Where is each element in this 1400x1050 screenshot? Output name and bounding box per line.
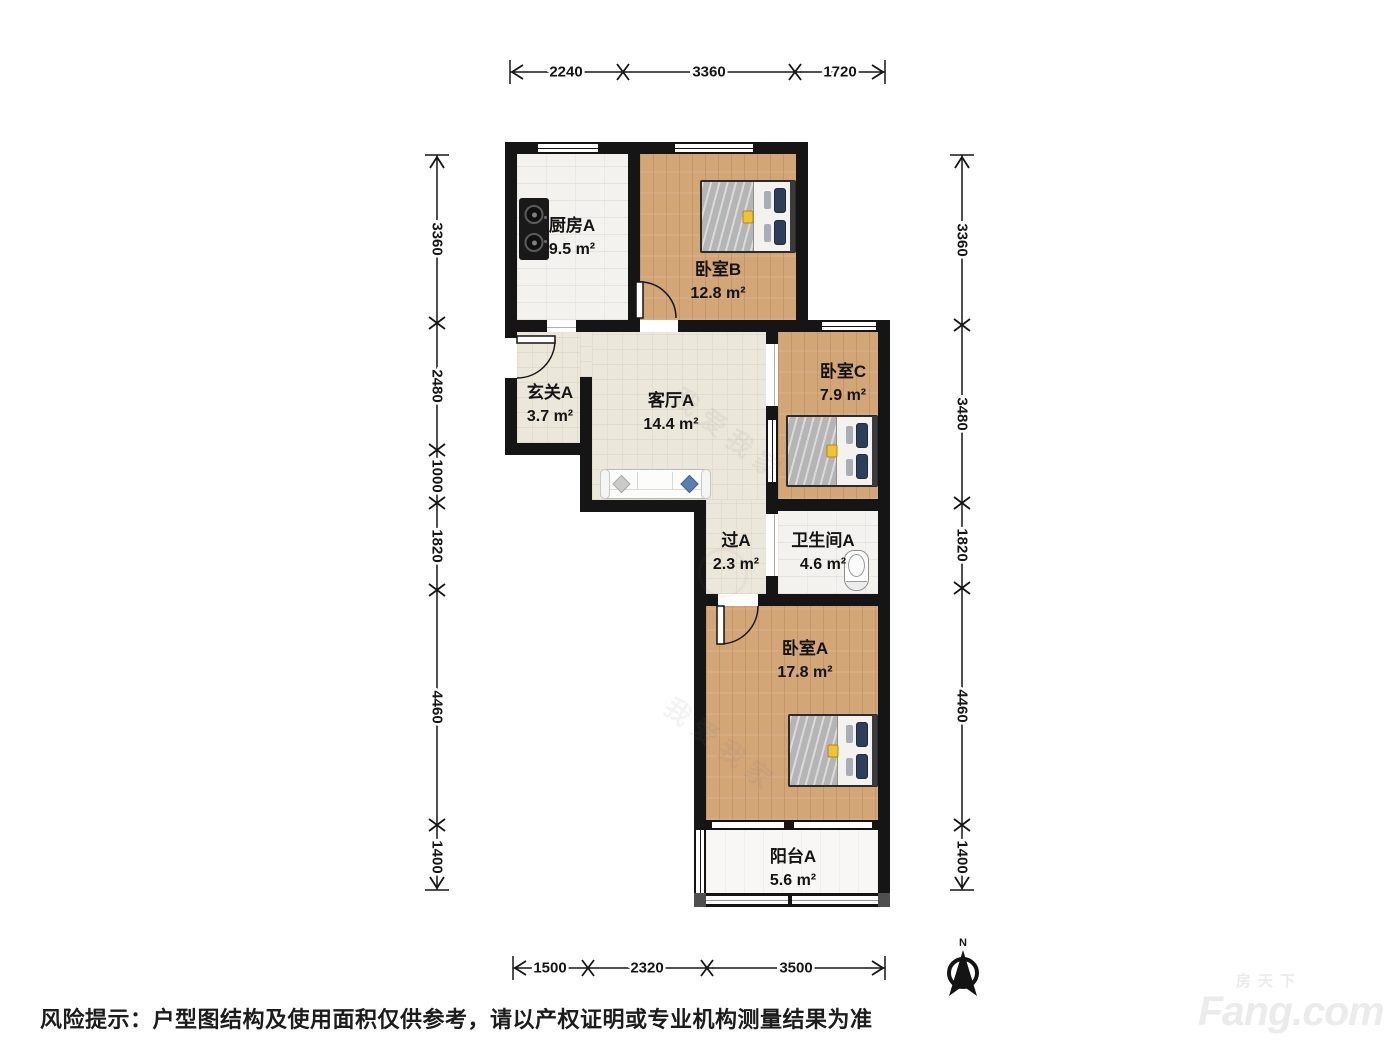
toilet-tank [846,581,867,589]
balcony-front-divider [788,893,792,907]
dimension-label: 3360 [692,64,725,81]
balcony-divider-post-1 [694,820,712,830]
wall-living-bottom [580,500,706,512]
bed-pillow [774,188,786,213]
room-area: 14.4 m² [643,413,698,436]
room-name: 阳台A [770,845,816,869]
bed-headboard [872,416,877,486]
bed-pillow-small [764,191,771,209]
window-bedroom-c [822,320,876,332]
room-area: 17.8 m² [777,661,832,684]
room-name: 厨房A [549,214,595,238]
door-bathroom [766,512,778,578]
room-label-hall: 过A 2.3 m² [713,529,759,576]
dimension-label: 1000 [429,459,446,492]
dimension-label: 3500 [779,960,812,977]
bed-accent [827,445,838,458]
compass-icon: N [949,937,977,996]
wall-mid-h-1 [505,320,545,332]
room-area: 9.5 m² [549,238,595,261]
floorplan-page: 我爱我家 我爱我家 厨房A 9.5 m² 卧室B 12.8 m² 玄关A 3.7… [0,0,1400,1050]
wall-bedrooma-top-2 [758,594,890,606]
bed-pillow-small [846,758,853,776]
dimension-label: 1500 [533,960,566,977]
sofa-icon [600,469,711,499]
sofa-pillow-gray [612,475,630,493]
window-balcony-left [694,830,706,893]
bed-pillow-small [846,459,853,477]
floor-entry-gap [580,332,592,377]
room-area: 7.9 m² [820,384,866,407]
wall-hall-left [694,500,706,830]
room-area: 2.3 m² [713,553,759,576]
dimension-label: 3480 [954,397,971,430]
sofa-pillow-blue [680,475,698,493]
dimension-label: 3360 [954,223,971,256]
dimension-label: 1400 [429,840,446,873]
stove-knob [544,216,547,219]
room-label-bedroom-c: 卧室C 7.9 m² [820,360,866,407]
burner-icon [525,233,544,252]
dimension-label: 1820 [954,528,971,561]
room-label-entry: 玄关A 3.7 m² [527,381,573,428]
dimension-right: 3360 3480 1820 4460 1400 [950,155,974,890]
bed-pillow-small [764,224,771,242]
room-label-bedroom-b: 卧室B 12.8 m² [690,258,745,305]
bed-bedroom-a-icon [788,714,878,787]
room-label-bedroom-a: 卧室A 17.8 m² [777,637,832,684]
bed-pillow [856,423,868,447]
wall-left-upper [505,142,517,338]
bed-pillow [856,454,868,478]
sofa-arm [701,469,711,499]
window-cdivider-panel [766,420,778,482]
dimension-bottom: 1500 2320 3500 [513,956,885,980]
room-name: 过A [713,529,759,553]
disclaimer-text: 风险提示：户型图结构及使用面积仅供参考，请以产权证明或专业机构测量结果为准 [40,1002,873,1034]
dimension-label: 3360 [429,222,446,255]
room-label-bathroom: 卫生间A 4.6 m² [791,529,854,576]
fang-logo: 房天下 Fang.com [1198,974,1390,1032]
wall-bathroom-top [766,499,890,511]
stove-knob [544,240,547,243]
bed-pillow [856,722,868,747]
room-label-living: 客厅A 14.4 m² [643,389,698,436]
wall-topblock-right [796,142,808,332]
door-bedroom-c [766,342,778,408]
burner-icon [525,205,544,224]
bed-accent [743,210,754,223]
room-name: 卧室B [690,258,745,282]
room-name: 玄关A [527,381,573,405]
room-name: 卧室C [820,360,866,384]
bed-bedroom-b-icon [700,180,796,253]
window-balcony-front [694,893,890,907]
logo-en: Fang.com [1198,990,1390,1032]
room-area: 3.7 m² [527,405,573,428]
room-area: 4.6 m² [791,553,854,576]
dimension-label: 2240 [549,64,582,81]
sofa-arm [600,469,610,499]
bed-pillow-small [846,426,853,444]
room-label-kitchen: 厨房A 9.5 m² [549,214,595,261]
wall-entry-bottom [505,443,592,455]
dimension-label: 1720 [823,64,856,81]
room-name: 卧室A [777,637,832,661]
bed-accent [828,744,839,757]
bed-pillow [856,754,868,779]
room-name: 卫生间A [791,529,854,553]
window-bedroom-b [675,142,753,154]
room-area: 5.6 m² [770,869,816,892]
compass-n-label: N [959,937,967,949]
stove-icon [519,198,549,260]
dimension-label: 1820 [429,529,446,562]
room-area: 12.8 m² [690,282,745,305]
room-label-balcony: 阳台A 5.6 m² [770,845,816,892]
wall-entry-stub [580,377,592,512]
bed-pillow-small [846,725,853,743]
dimension-label: 2480 [429,369,446,402]
wall-cdivider-a [766,320,778,342]
balcony-front-cap-left [694,893,706,907]
opening-kitchen-pass [545,320,578,332]
bed-headboard [872,715,877,786]
balcony-divider-post-3 [872,820,890,830]
room-name: 客厅A [643,389,698,413]
wall-kitchen-divider [628,142,640,332]
dimension-top: 2240 3360 1720 [510,60,885,84]
dimension-label: 4460 [429,690,446,723]
wall-right [878,320,890,893]
dimension-label: 2320 [630,960,663,977]
balcony-front-cap-right [878,893,890,907]
balcony-divider-post-2 [784,820,794,830]
dimension-left: 3360 2480 1000 1820 4460 1400 [425,155,449,890]
bed-headboard [790,181,795,252]
bed-bedroom-c-icon [786,415,878,487]
wall-cdivider-nub [766,408,778,420]
window-kitchen [538,142,598,154]
dimension-label: 4460 [954,689,971,722]
bed-pillow [774,220,786,245]
dimension-label: 1400 [954,840,971,873]
